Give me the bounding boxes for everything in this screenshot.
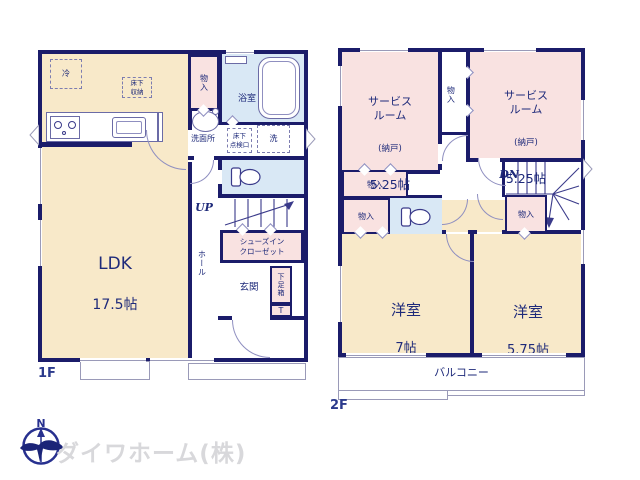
vent-window: [583, 158, 593, 180]
refrigerator-label: 冷: [62, 69, 70, 79]
room-toilet-1f: [222, 160, 304, 194]
underfloor-storage: 床下 収納: [122, 77, 152, 98]
shoe-box: 下足箱: [270, 266, 292, 304]
shoe-box-t: T: [270, 304, 292, 317]
wall: [218, 160, 222, 170]
window: [482, 353, 566, 357]
shoe-box-label: 下足箱: [276, 273, 286, 297]
closet-1f-label: 物入: [199, 74, 210, 92]
service-left-name: サービス ルーム: [348, 95, 432, 124]
burner: [62, 131, 66, 135]
window: [484, 48, 536, 52]
shoes-in-closet: シューズイン クローゼット: [220, 230, 304, 263]
wall: [438, 52, 442, 132]
ldk-size: 17.5帖: [70, 296, 160, 314]
porch-step: [188, 363, 306, 380]
room-bathroom: [222, 54, 304, 123]
window: [360, 48, 408, 52]
door-arc-service-left: [442, 135, 468, 161]
window: [338, 266, 342, 322]
terrace-step: [80, 361, 150, 380]
service-right-note: (納戸): [480, 138, 572, 149]
door-arc-entrance: [232, 320, 270, 358]
toilet-icon: [230, 165, 262, 189]
stairs-up: [222, 198, 304, 228]
bathtub-inner: [262, 61, 296, 115]
window: [338, 66, 342, 106]
bedroom-575-name: 洋室: [486, 303, 570, 323]
bathroom-label: 浴室: [226, 94, 268, 106]
shoe-box-t-label: T: [279, 306, 284, 315]
balcony: バルコニー: [338, 357, 585, 391]
refrigerator-space: 冷: [50, 59, 82, 89]
ldk-name: LDK: [70, 253, 160, 275]
wall: [188, 162, 192, 358]
floor-label-2f: 2F: [330, 398, 348, 413]
shower-counter: [225, 56, 247, 64]
burner: [54, 121, 62, 129]
balcony-step: [338, 390, 448, 400]
kitchen-half-wall: [42, 142, 132, 147]
service-left-size: 5.25帖: [348, 177, 432, 193]
burner: [68, 121, 76, 129]
hall-label: ホール: [196, 238, 206, 288]
wall: [214, 156, 304, 160]
laundry-space: 洗: [257, 125, 290, 153]
closet-by-stairs-label: 物入: [518, 209, 534, 220]
floorplan-1f: 物入 冷 床下 収納 床下 点検口 洗: [38, 50, 308, 362]
floorplan-canvas: 物入 冷 床下 収納 床下 点検口 洗: [0, 0, 640, 480]
closet-top-label: 物入: [445, 70, 455, 120]
vent-window: [29, 124, 39, 146]
entrance-label: 玄関: [228, 282, 270, 294]
service-left-label: サービス ルーム (納戸) 5.25帖: [348, 74, 432, 214]
balcony-step: [447, 390, 585, 396]
window: [150, 358, 214, 362]
wall: [218, 316, 232, 320]
ldk-label: LDK 17.5帖: [70, 232, 160, 335]
underfloor-storage-label: 床下 収納: [131, 79, 144, 95]
window: [38, 220, 42, 266]
bedroom-7-name: 洋室: [364, 301, 448, 321]
window: [346, 353, 426, 357]
underfloor-hatch-label: 床下 点検口: [230, 132, 250, 148]
window: [581, 100, 585, 140]
stove: [50, 116, 80, 139]
laundry-label: 洗: [270, 134, 278, 144]
window: [581, 230, 585, 264]
company-watermark: ダイワホーム(株): [56, 434, 246, 468]
underfloor-hatch: 床下 点検口: [227, 128, 252, 153]
vent-window: [306, 128, 316, 150]
service-left-note: (納戸): [348, 144, 432, 155]
kitchen-sink-inner: [116, 121, 142, 134]
washbasin-faucet: [212, 108, 219, 115]
closet-1f: 物入: [188, 54, 220, 111]
washroom-label: 洗面所: [182, 134, 224, 144]
window: [80, 358, 146, 362]
door-arc-washroom: [190, 160, 214, 184]
window: [226, 50, 254, 54]
shoes-in-closet-label: シューズイン クローゼット: [240, 237, 285, 257]
kitchen-sink: [112, 117, 146, 138]
service-right-name: サービス ルーム: [480, 89, 572, 118]
up-label: UP: [190, 201, 218, 215]
bathtub: [258, 57, 300, 119]
wall: [438, 135, 442, 144]
floorplan-2f: 物入 物入 物入 物入 サービス ルーム (納戸) 5.25帖 サービス ルーム…: [338, 48, 585, 357]
window: [38, 148, 42, 204]
service-right-label: サービス ルーム (納戸) 5.25帖: [480, 68, 572, 208]
floor-label-1f: 1F: [38, 366, 56, 381]
balcony-label: バルコニー: [339, 366, 584, 380]
